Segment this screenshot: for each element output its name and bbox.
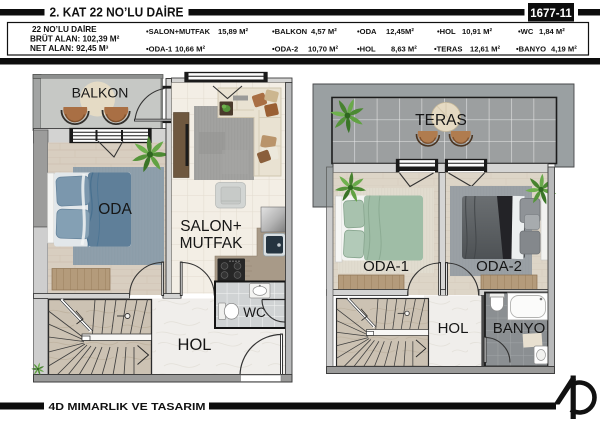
svg-text:BALKON: BALKON [72,85,129,101]
svg-text:WC: WC [243,305,266,320]
svg-text:BANYO: BANYO [493,320,546,337]
svg-text:HOL: HOL [438,320,469,337]
svg-text:22 NO’LU DAİRE: 22 NO’LU DAİRE [32,24,97,34]
svg-text:12,45M²: 12,45M² [386,27,414,36]
svg-text:•ODA-2: •ODA-2 [272,45,298,54]
svg-text:•ODA-1: •ODA-1 [146,45,173,54]
svg-text:•HOL: •HOL [357,45,376,54]
svg-text:1,84 M²: 1,84 M² [539,27,565,36]
svg-text:12,61 M²: 12,61 M² [470,45,500,54]
svg-text:•BALKON: •BALKON [272,27,307,36]
svg-text:•HOL: •HOL [437,27,456,36]
svg-text:HOL: HOL [178,336,212,354]
svg-text:8,63 M²: 8,63 M² [391,45,417,54]
svg-text:SALON+: SALON+ [180,218,242,235]
svg-text:10,66 M²: 10,66 M² [175,45,205,54]
svg-text:10,91 M²: 10,91 M² [462,27,492,36]
svg-text:2. KAT 22 NO’LU DAİRE: 2. KAT 22 NO’LU DAİRE [50,5,184,20]
svg-text:•BANYO: •BANYO [516,45,546,54]
svg-text:4,19 M²: 4,19 M² [551,45,577,54]
svg-text:ODA-1: ODA-1 [363,258,409,275]
svg-text:NET ALAN: 92,45 M³: NET ALAN: 92,45 M³ [30,44,109,53]
svg-text:4D MIMARLIK VE TASARIM: 4D MIMARLIK VE TASARIM [49,402,206,413]
svg-text:15,89 M²: 15,89 M² [218,27,248,36]
svg-text:MUTFAK: MUTFAK [180,235,244,252]
svg-text:•TERAS: •TERAS [434,45,462,54]
svg-text:BRÜT ALAN: 102,39 M²: BRÜT ALAN: 102,39 M² [30,33,120,43]
svg-text:•ODA: •ODA [357,27,377,36]
svg-text:•WC: •WC [518,27,534,36]
svg-text:TERAS: TERAS [415,112,467,129]
svg-text:•SALON+MUTFAK: •SALON+MUTFAK [146,27,210,36]
svg-text:4,57 M²: 4,57 M² [311,27,337,36]
svg-text:10,70 M²: 10,70 M² [308,45,338,54]
svg-text:1677-11: 1677-11 [530,8,572,20]
svg-text:ODA: ODA [98,201,132,218]
svg-text:ODA-2: ODA-2 [476,258,522,275]
